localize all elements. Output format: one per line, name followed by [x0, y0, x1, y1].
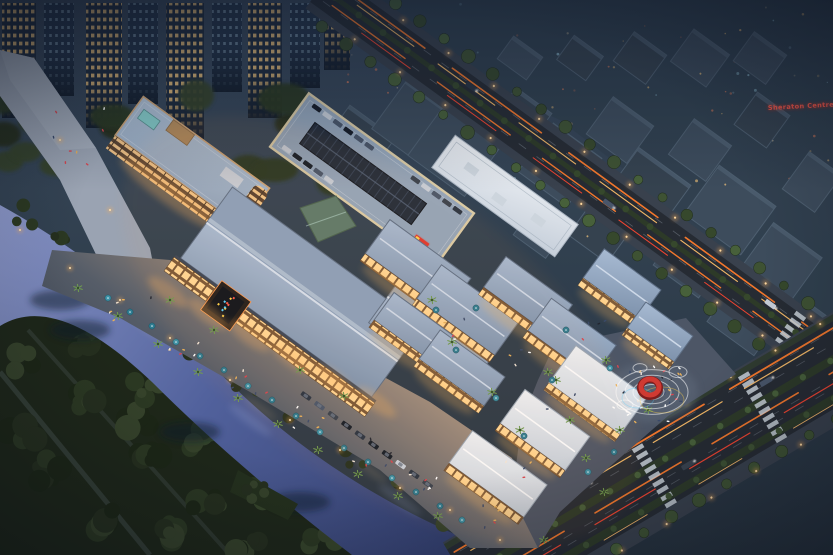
lighting-effects: [0, 0, 833, 555]
vignette: [0, 0, 833, 555]
aerial-rendering-stage: Sheraton Centre Sheraton Centre: [0, 0, 833, 555]
aerial-rendering-canvas: Sheraton Centre Sheraton Centre: [0, 0, 833, 555]
